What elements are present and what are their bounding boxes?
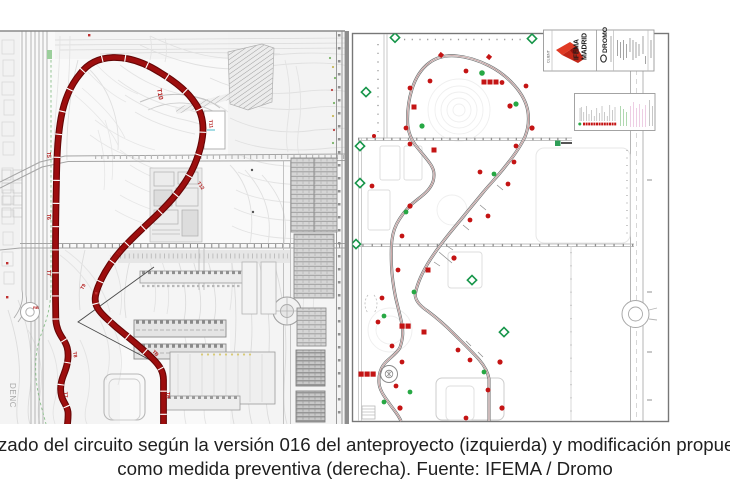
svg-text:T7: T7 bbox=[62, 392, 69, 399]
svg-text:T5: T5 bbox=[45, 152, 51, 158]
svg-text:MADRID: MADRID bbox=[582, 33, 589, 60]
svg-text:T6: T6 bbox=[45, 214, 51, 220]
svg-text:CLIENT: CLIENT bbox=[547, 49, 551, 63]
svg-text:DROMO: DROMO bbox=[602, 27, 609, 53]
svg-text:RB: RB bbox=[33, 305, 39, 310]
svg-text:T11: T11 bbox=[207, 120, 214, 129]
svg-text:DENC: DENC bbox=[8, 383, 17, 408]
svg-text:T7: T7 bbox=[45, 270, 51, 276]
svg-text:TB: TB bbox=[164, 392, 170, 399]
svg-text:IFEMA: IFEMA bbox=[574, 39, 581, 60]
